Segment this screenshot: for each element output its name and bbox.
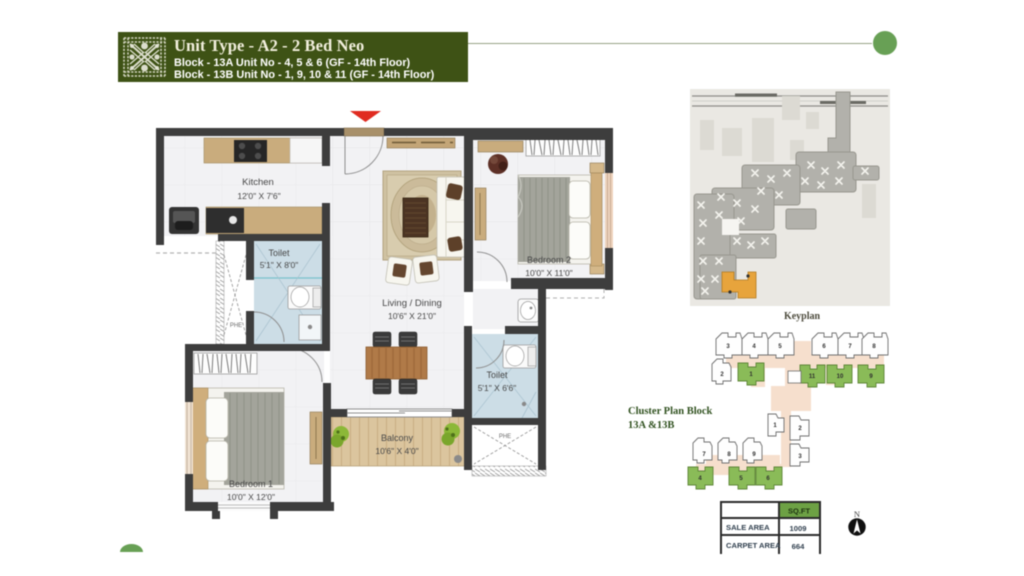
svg-text:664: 664 — [792, 542, 805, 551]
svg-text:PHE: PHE — [499, 434, 511, 440]
svg-text:5'1" X 8'0": 5'1" X 8'0" — [260, 260, 299, 270]
svg-text:1009: 1009 — [790, 524, 807, 533]
svg-text:N: N — [854, 509, 860, 519]
svg-text:Cluster Plan Block: Cluster Plan Block — [628, 406, 713, 417]
svg-text:10'0" X 11'0": 10'0" X 11'0" — [525, 268, 572, 278]
svg-text:Living / Dining: Living / Dining — [382, 298, 442, 309]
svg-text:Bedroom 1: Bedroom 1 — [229, 479, 273, 489]
svg-text:10'6" X 4'0": 10'6" X 4'0" — [375, 446, 418, 456]
svg-text:SQ.FT: SQ.FT — [788, 507, 811, 516]
svg-text:10'0" X 12'0": 10'0" X 12'0" — [227, 492, 275, 502]
svg-text:CARPET AREA: CARPET AREA — [726, 541, 781, 550]
svg-text:13A &13B: 13A &13B — [628, 420, 674, 431]
svg-text:10: 10 — [837, 374, 844, 380]
svg-text:10'6" X 21'0": 10'6" X 21'0" — [388, 311, 436, 321]
svg-text:5'1" X 6'6": 5'1" X 6'6" — [478, 383, 517, 393]
svg-text:Bedroom 2: Bedroom 2 — [527, 255, 571, 265]
svg-text:Toilet: Toilet — [486, 370, 508, 380]
svg-text:Keyplan: Keyplan — [784, 311, 821, 322]
svg-text:SALE AREA: SALE AREA — [726, 523, 770, 532]
svg-text:11: 11 — [809, 374, 816, 380]
svg-text:12'0" X 7'6": 12'0" X 7'6" — [237, 191, 280, 201]
svg-text:Balcony: Balcony — [381, 433, 414, 443]
svg-text:Kitchen: Kitchen — [242, 177, 274, 188]
svg-text:Toilet: Toilet — [268, 248, 290, 258]
svg-text:PHE: PHE — [230, 323, 242, 329]
